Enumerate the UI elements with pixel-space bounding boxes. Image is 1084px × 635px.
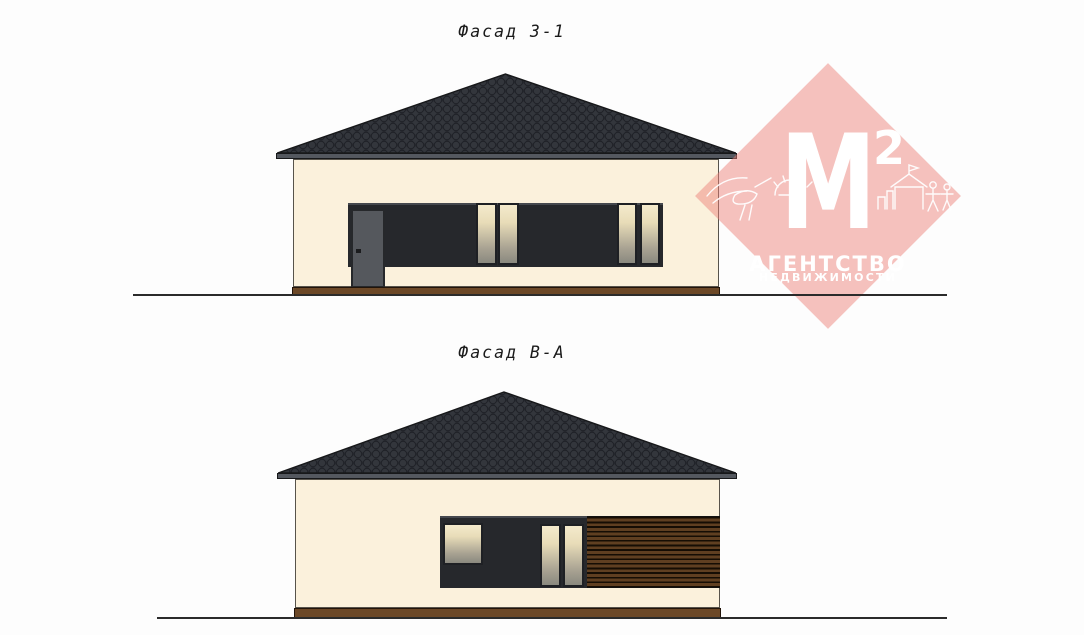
entrance-door [351,209,385,288]
window-b [498,203,519,265]
wood-slat-cladding [587,516,720,588]
watermark-content: M 2 АГЕНТСТВО НЕДВИЖИМОСТИ [695,63,961,330]
watermark-realty-text: НЕДВИЖИМОСТИ [695,272,961,283]
watermark-logo-m2: M 2 [695,117,961,248]
hip-roof [276,73,737,154]
window-square [443,523,483,565]
facade-top-title: Фасад 3-1 [362,22,662,41]
door-handle [356,249,361,253]
window-a [476,203,497,265]
window-f [563,524,584,587]
watermark-superscript: 2 [873,125,905,171]
window-e [540,524,561,587]
facade-bottom-title: Фасад В-А [362,343,662,362]
window-d [640,203,660,265]
hip-roof [277,391,737,474]
ground-line [157,617,947,619]
ground-line [133,294,947,296]
drawing-canvas: Фасад 3-1 Фасад В-А [0,0,1084,635]
window-c [617,203,637,265]
watermark-letter: M [780,117,876,248]
